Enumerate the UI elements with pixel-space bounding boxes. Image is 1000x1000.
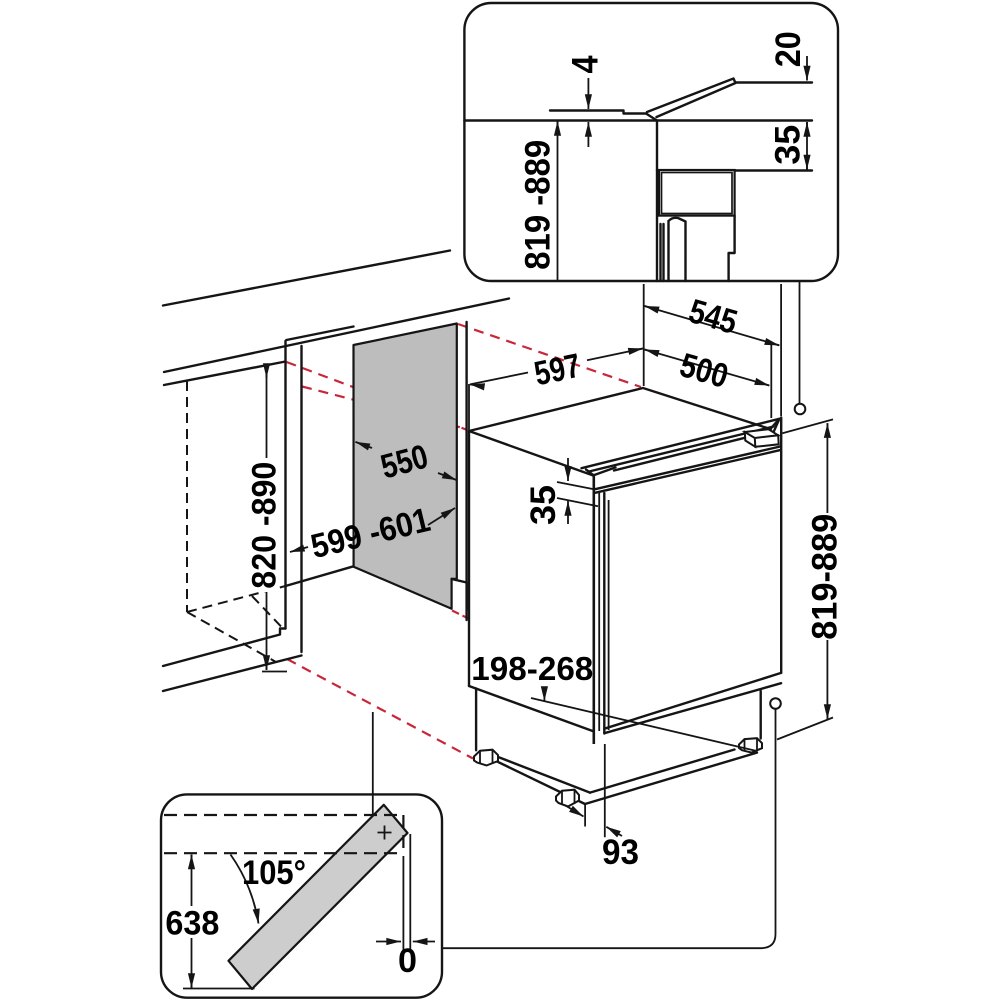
svg-text:35: 35 bbox=[768, 125, 807, 165]
svg-text:0: 0 bbox=[398, 942, 417, 980]
svg-text:35: 35 bbox=[524, 485, 563, 525]
svg-text:4: 4 bbox=[565, 55, 606, 73]
svg-text:105°: 105° bbox=[242, 854, 306, 892]
svg-text:20: 20 bbox=[769, 31, 808, 67]
svg-text:819-889: 819-889 bbox=[806, 514, 845, 640]
svg-text:820 -890: 820 -890 bbox=[245, 462, 283, 589]
svg-text:93: 93 bbox=[602, 833, 639, 872]
svg-text:819 -889: 819 -889 bbox=[518, 140, 557, 270]
svg-text:198-268: 198-268 bbox=[471, 650, 593, 687]
svg-text:638: 638 bbox=[165, 904, 219, 942]
